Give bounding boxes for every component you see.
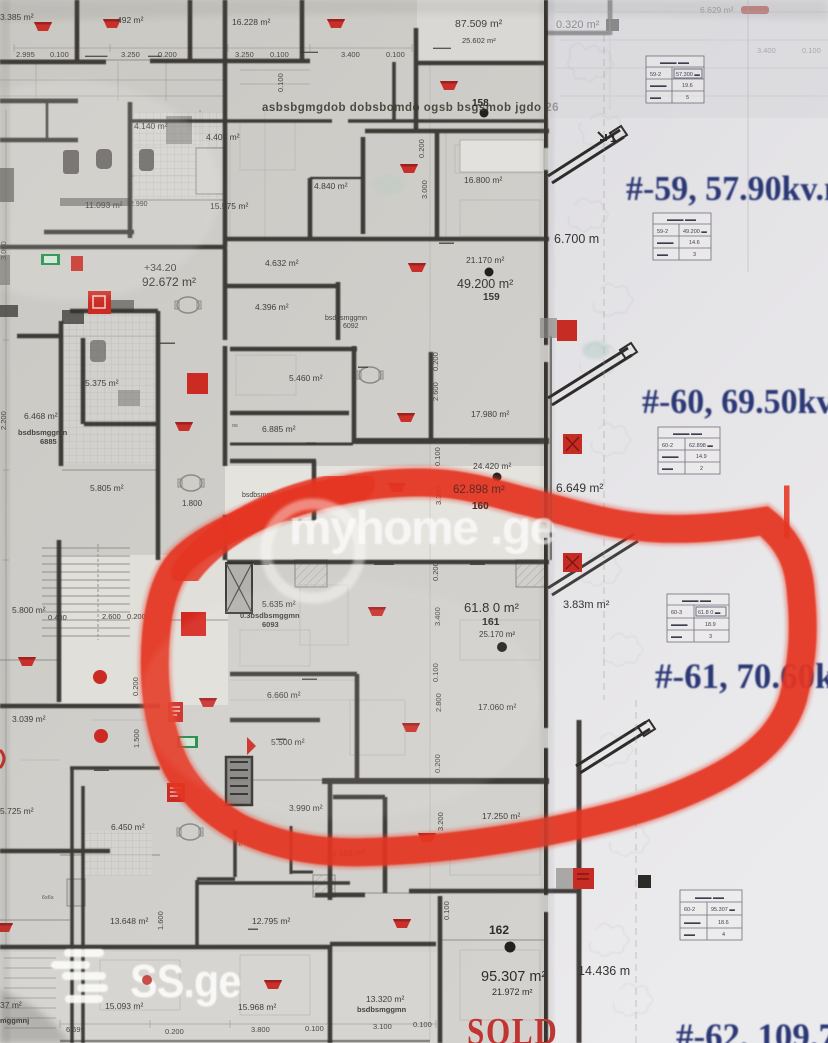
svg-text:▬▬▬ ▬▬: ▬▬▬ ▬▬	[673, 431, 703, 437]
svg-text:1.500: 1.500	[132, 729, 141, 748]
svg-text:25.602 m²: 25.602 m²	[462, 36, 496, 45]
svg-text:6.885 m²: 6.885 m²	[262, 424, 296, 434]
svg-text:5: 5	[686, 95, 689, 101]
svg-text:▬▬: ▬▬	[248, 926, 258, 932]
svg-text:▬▬▬ ▬▬: ▬▬▬ ▬▬	[682, 598, 712, 604]
svg-text:3.83m m²: 3.83m m²	[563, 599, 610, 611]
svg-text:▬▬: ▬▬	[684, 932, 696, 938]
svg-text:18.6: 18.6	[718, 920, 729, 926]
svg-text:▬▬▬▬: ▬▬▬▬	[300, 49, 319, 54]
svg-text:0.200: 0.200	[165, 1027, 184, 1036]
svg-text:57.300 ▬: 57.300 ▬	[676, 72, 700, 78]
svg-text:▬▬▬: ▬▬▬	[160, 340, 175, 346]
svg-text:2.995: 2.995	[16, 50, 35, 59]
svg-text:bsdbsmggmn: bsdbsmggmn	[18, 428, 68, 437]
svg-text:4.405 m²: 4.405 m²	[206, 132, 240, 142]
svg-text:5.805 m²: 5.805 m²	[90, 483, 124, 493]
svg-text:0.200: 0.200	[417, 139, 426, 158]
svg-text:6.450 m²: 6.450 m²	[111, 822, 145, 832]
svg-text:2: 2	[700, 466, 703, 472]
svg-text:0.200: 0.200	[431, 352, 440, 371]
svg-text:▬▬▬: ▬▬▬	[684, 920, 701, 926]
svg-text:49.200 ▬: 49.200 ▬	[683, 229, 707, 235]
svg-text:16.800 m²: 16.800 m²	[464, 175, 502, 185]
svg-text:0.100: 0.100	[442, 901, 451, 920]
svg-text:6.700 m: 6.700 m	[554, 232, 599, 246]
svg-text:▬▬▬ ▬▬: ▬▬▬ ▬▬	[695, 895, 725, 901]
svg-text:▬▬▬: ▬▬▬	[650, 83, 667, 89]
svg-text:62.898 ▬: 62.898 ▬	[689, 443, 713, 449]
svg-text:▬▬▬ ▬▬: ▬▬▬ ▬▬	[667, 217, 697, 223]
svg-text:95.307 m²: 95.307 m²	[481, 969, 546, 985]
svg-text:0.100: 0.100	[433, 447, 442, 466]
svg-text:▬▬: ▬▬	[650, 95, 662, 101]
svg-text:myhome: myhome	[289, 502, 478, 555]
svg-text:21.972 m²: 21.972 m²	[492, 987, 533, 997]
svg-text:62.898 m²: 62.898 m²	[453, 484, 505, 496]
svg-text:18.9: 18.9	[705, 622, 716, 628]
svg-text:▬▬▬: ▬▬▬	[470, 561, 485, 567]
svg-text:0.100: 0.100	[413, 1020, 432, 1029]
svg-text:▬▬▬ ▬▬: ▬▬▬ ▬▬	[660, 60, 690, 66]
svg-text:▬▬▬▬: ▬▬▬▬	[374, 561, 394, 567]
svg-text:49.200 m²: 49.200 m²	[457, 277, 513, 291]
svg-text:6885: 6885	[40, 437, 57, 446]
svg-text:24.420 m²: 24.420 m²	[473, 461, 511, 471]
svg-text:4.840 m²: 4.840 m²	[314, 181, 348, 191]
svg-text:#-60, 69.50kv.m: #-60, 69.50kv.m	[642, 383, 828, 422]
svg-text:95.307 ▬: 95.307 ▬	[711, 907, 735, 913]
svg-text:▬▬▬▬▬: ▬▬▬▬▬	[85, 53, 108, 58]
svg-text:14.6: 14.6	[689, 240, 700, 246]
svg-text:0.100: 0.100	[386, 50, 405, 59]
svg-text:60-2: 60-2	[662, 443, 673, 449]
svg-text:3.200: 3.200	[436, 812, 445, 831]
svg-text:2.600: 2.600	[431, 382, 440, 401]
svg-text:60-2: 60-2	[684, 907, 695, 913]
svg-text:59-2: 59-2	[657, 229, 668, 235]
svg-text:5.460 m²: 5.460 m²	[289, 373, 323, 383]
svg-text:▬▬▬: ▬▬▬	[439, 240, 454, 246]
svg-text:1.800: 1.800	[182, 499, 203, 508]
svg-text:▬▬▬: ▬▬▬	[657, 240, 674, 246]
svg-text:3.400: 3.400	[341, 50, 360, 59]
svg-text:6.468 m²: 6.468 m²	[24, 411, 58, 421]
svg-text:159: 159	[483, 292, 500, 303]
svg-text:▬▬▬: ▬▬▬	[94, 767, 109, 773]
svg-text:▬▬▬▬: ▬▬▬▬	[433, 45, 452, 50]
svg-text:5.800 m²: 5.800 m²	[12, 605, 46, 615]
svg-text:0.100: 0.100	[270, 50, 289, 59]
svg-text:▬▬: ▬▬	[657, 252, 669, 258]
svg-text:15.968 m²: 15.968 m²	[238, 1002, 276, 1012]
svg-text:6s6s: 6s6s	[42, 895, 54, 901]
svg-text:3.100: 3.100	[373, 1022, 392, 1031]
svg-text:3.039 m²: 3.039 m²	[12, 714, 46, 724]
svg-text:17.250 m²: 17.250 m²	[482, 811, 520, 821]
svg-text:21.170 m²: 21.170 m²	[466, 255, 504, 265]
svg-text:0.200: 0.200	[431, 562, 440, 581]
svg-text:#-62, 109.7: #-62, 109.7	[676, 1016, 828, 1043]
svg-text:158: 158	[472, 98, 489, 109]
svg-text:3: 3	[693, 252, 696, 258]
svg-text:0.100: 0.100	[305, 1024, 324, 1033]
svg-text:▬▬: ▬▬	[358, 364, 368, 370]
svg-text:60-3: 60-3	[671, 610, 682, 616]
svg-text:asbsbgmgdob dobsbomdo ogsb bsg: asbsbgmgdob dobsbomdo ogsb bsgsmob jgdo …	[262, 102, 559, 114]
svg-text:3.800: 3.800	[251, 1025, 270, 1034]
svg-text:▬▬: ▬▬	[662, 466, 674, 472]
svg-text:6092: 6092	[343, 323, 359, 330]
svg-text:0.100: 0.100	[276, 73, 285, 92]
svg-text:19.6: 19.6	[682, 83, 693, 89]
svg-text:4: 4	[722, 932, 725, 938]
svg-text:3.000: 3.000	[420, 180, 429, 199]
svg-text:162: 162	[489, 923, 509, 937]
svg-text:6.649 m²: 6.649 m²	[556, 481, 603, 495]
svg-text:#-59, 57.90kv.m: #-59, 57.90kv.m	[626, 170, 828, 209]
svg-text:▬▬▬: ▬▬▬	[662, 454, 679, 460]
svg-text:0.100: 0.100	[50, 50, 69, 59]
svg-text:▬▬: ▬▬	[306, 440, 316, 446]
svg-text:12.795 m²: 12.795 m²	[252, 916, 290, 926]
svg-text:▬▬▬: ▬▬▬	[148, 53, 162, 58]
svg-text:3.250: 3.250	[235, 50, 254, 59]
svg-text:bsdbsmggmn: bsdbsmggmn	[325, 315, 367, 322]
svg-text:2.600: 2.600	[102, 612, 121, 621]
svg-text:14.9: 14.9	[696, 454, 707, 460]
svg-text:bsdbsmggmn: bsdbsmggmn	[357, 1005, 407, 1014]
svg-text:59-2: 59-2	[650, 72, 661, 78]
svg-text:3: 3	[709, 634, 712, 640]
svg-text:4.396 m²: 4.396 m²	[255, 302, 289, 312]
svg-text:▬▬▬: ▬▬▬	[671, 622, 688, 628]
svg-text:87.509 m²: 87.509 m²	[455, 18, 503, 30]
svg-text:17.980 m²: 17.980 m²	[471, 409, 509, 419]
svg-text:1.600: 1.600	[156, 911, 165, 930]
svg-text:13.320 m²: 13.320 m²	[366, 994, 404, 1004]
svg-text:0.400: 0.400	[48, 613, 67, 622]
svg-text:6.699: 6.699	[66, 1025, 85, 1034]
svg-text:os: os	[232, 423, 238, 429]
svg-text:▬▬: ▬▬	[671, 634, 683, 640]
svg-text:14.436 m: 14.436 m	[578, 964, 630, 978]
svg-text:61.8 0 ▬: 61.8 0 ▬	[698, 610, 721, 616]
svg-text:3.250: 3.250	[121, 50, 140, 59]
svg-text:5.375 m²: 5.375 m²	[85, 378, 119, 388]
svg-text:16.228 m²: 16.228 m²	[232, 17, 270, 27]
svg-text:4.632 m²: 4.632 m²	[265, 258, 299, 268]
svg-text:1: 1	[610, 133, 616, 145]
svg-text:13.648 m²: 13.648 m²	[110, 916, 148, 926]
